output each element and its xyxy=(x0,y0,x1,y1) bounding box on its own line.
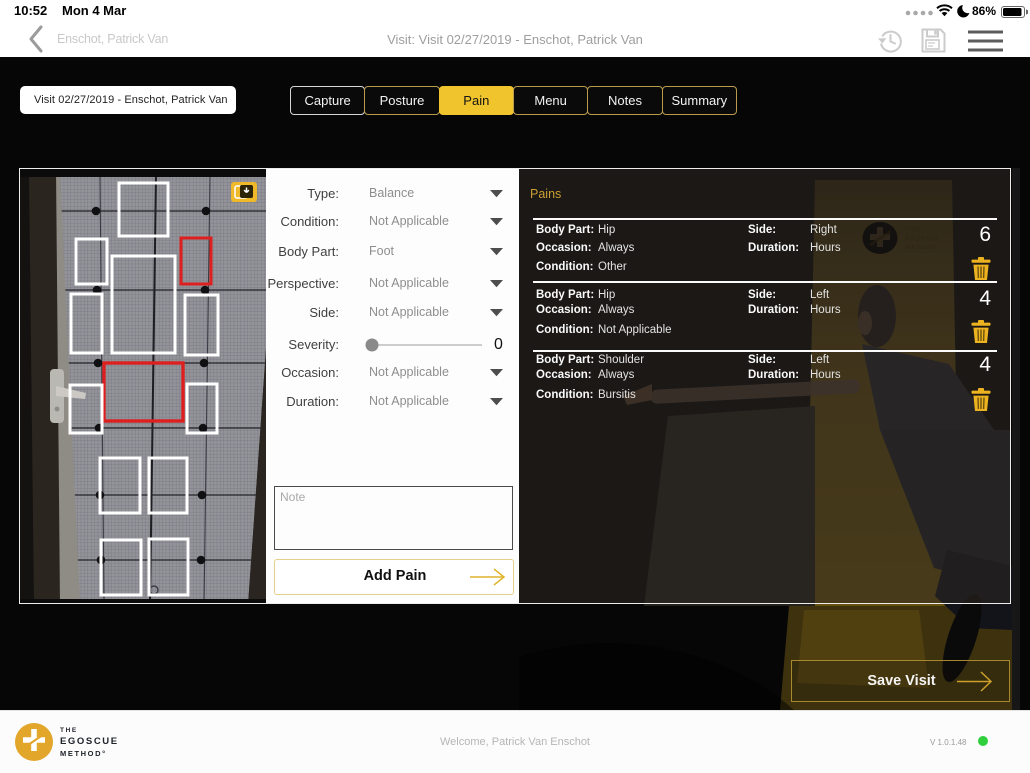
svg-text:METHOD: METHOD xyxy=(906,245,936,251)
svg-text:EGOSCUE: EGOSCUE xyxy=(906,236,941,242)
svg-text:THE: THE xyxy=(906,227,920,233)
